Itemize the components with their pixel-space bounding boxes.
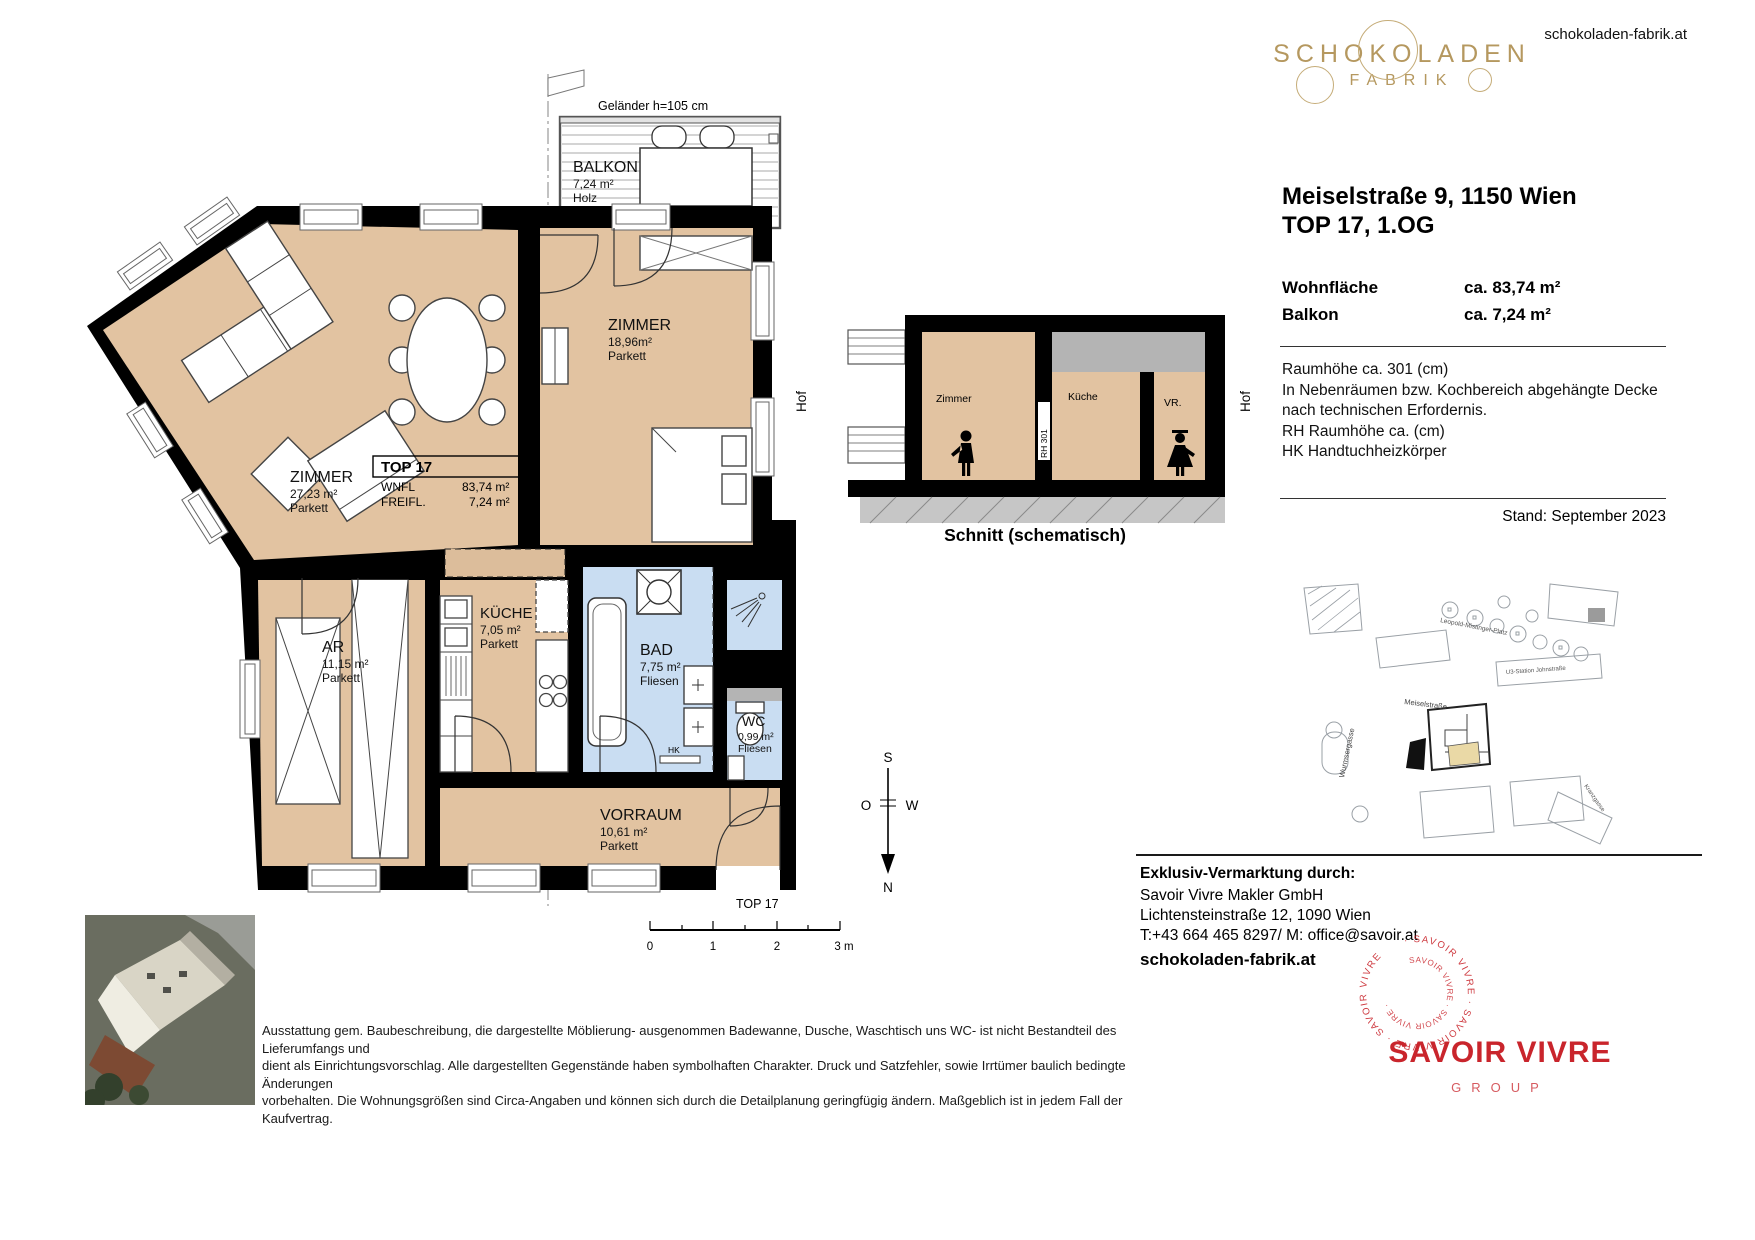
date-stamp: Stand: September 2023 (1280, 508, 1666, 526)
svg-text:0: 0 (647, 941, 653, 953)
label-kueche: KÜCHE (480, 604, 533, 622)
svg-text:Holz: Holz (573, 191, 597, 205)
street-label: Meiselstraße (1404, 697, 1448, 711)
section-kueche (1052, 372, 1140, 480)
entrance-label: TOP 17 (736, 897, 779, 911)
marketing-heading: Exklusiv-Vermarktung durch: (1140, 864, 1418, 884)
company-address: Lichtensteinstraße 12, 1090 Wien (1140, 906, 1418, 926)
hof-right-label: Hof (1238, 391, 1253, 412)
map-unit-highlight (1448, 742, 1480, 766)
marketing-block: Exklusiv-Vermarktung durch: Savoir Vivre… (1140, 864, 1418, 946)
unit-line: TOP 17, 1.OG (1282, 211, 1577, 240)
svg-text:27,23 m²: 27,23 m² (290, 487, 337, 501)
area-summary: Wohnflächeca. 83,74 m² Balkonca. 7,24 m² (1282, 278, 1560, 332)
svg-text:Parkett: Parkett (290, 501, 329, 515)
website-url-footer[interactable]: schokoladen-fabrik.at (1140, 950, 1316, 970)
label-bad: BAD (640, 642, 673, 659)
balcony-railing (560, 117, 780, 123)
shower (637, 570, 681, 614)
label-ar: AR (322, 639, 344, 656)
svg-text:O: O (861, 798, 872, 813)
bed (652, 428, 752, 542)
divider (1136, 854, 1702, 856)
entrance-opening (716, 866, 780, 890)
divider (1280, 346, 1666, 347)
section-label-kueche: Küche (1068, 391, 1098, 403)
svg-text:Parkett: Parkett (322, 671, 361, 685)
aerial-photo (85, 915, 255, 1105)
website-url-top[interactable]: schokoladen-fabrik.at (1544, 26, 1687, 43)
label-wc: WC (742, 713, 765, 729)
label-zimmer-18: ZIMMER (608, 317, 671, 334)
svg-text:2: 2 (774, 941, 780, 953)
notes-block: Raumhöhe ca. 301 (cm) In Nebenräumen bzw… (1282, 360, 1658, 463)
svg-text:WNFL: WNFL (381, 480, 415, 494)
brand-subtitle: GROUP (1352, 1080, 1648, 1095)
logo-circle-icon (1358, 20, 1418, 80)
address-line: Meiselstraße 9, 1150 Wien (1282, 182, 1577, 211)
section-caption: Schnitt (schematisch) (944, 525, 1126, 545)
site-map: Leopold-Mistinger-Platz Meiselstraße Wur… (1300, 582, 1620, 847)
svg-text:Parkett: Parkett (480, 637, 519, 651)
svg-text:N: N (883, 880, 893, 895)
svg-text:S: S (883, 750, 892, 765)
svg-text:1: 1 (710, 941, 716, 953)
wc-decke-band (727, 688, 782, 701)
area-row: Balkonca. 7,24 m² (1282, 305, 1560, 325)
company-name: Savoir Vivre Makler GmbH (1140, 886, 1418, 906)
street-label: Leopold-Mistinger-Platz (1440, 617, 1508, 637)
logo-circle-icon (1468, 68, 1492, 92)
section-flag-icon (548, 70, 584, 96)
section-label-zimmer: Zimmer (936, 393, 972, 405)
svg-text:Fliesen: Fliesen (640, 674, 679, 688)
towel-radiator (660, 756, 700, 763)
bathtub (588, 598, 626, 746)
rh-label: RH 301 (1039, 429, 1049, 458)
hk-label: HK (668, 745, 680, 755)
label-zimmer-27: ZIMMER (290, 469, 353, 486)
svg-text:Parkett: Parkett (600, 839, 639, 853)
stamp-inner-text: SAVOIR VIVRE · SAVOIR VIVRE · (1372, 947, 1463, 1038)
svg-text:7,24 m²: 7,24 m² (469, 495, 510, 509)
compass: S O W N (861, 750, 919, 895)
disclaimer: Ausstattung gem. Baubeschreibung, die da… (262, 1022, 1134, 1127)
svg-text:FREIFL.: FREIFL. (381, 495, 426, 509)
svg-text:Parkett: Parkett (608, 349, 647, 363)
area-row: Wohnflächeca. 83,74 m² (1282, 278, 1560, 298)
hof-left-label: Hof (794, 391, 809, 412)
suspended-ceiling-band (1052, 332, 1205, 372)
section-zimmer (922, 332, 1035, 480)
section-label-vr: VR. (1164, 397, 1182, 409)
dining-table (389, 295, 505, 425)
wc-basin (728, 756, 744, 780)
kueche-decke-dashed (445, 549, 565, 577)
svg-text:Fliesen: Fliesen (738, 743, 772, 755)
svg-text:10,61 m²: 10,61 m² (600, 825, 647, 839)
street-label: U3-Station Johnstraße (1506, 666, 1567, 676)
balcony-chair (700, 126, 734, 148)
svg-text:83,74 m²: 83,74 m² (462, 480, 509, 494)
divider (1280, 498, 1666, 499)
scale-bar: 0 1 2 3 m (647, 921, 854, 953)
floor-plan: Geländer h=105 cm (0, 0, 1270, 960)
railing-note: Geländer h=105 cm (598, 99, 708, 113)
svg-text:7,75 m²: 7,75 m² (640, 660, 681, 674)
logo: SCHOKOLADEN FABRIK (1262, 40, 1542, 90)
svg-text:SAVOIR VIVRE · SAVOIR VIVRE ·: SAVOIR VIVRE · SAVOIR VIVRE · (1372, 947, 1463, 1038)
wardrobe (640, 236, 752, 270)
map-subject-building (1406, 704, 1490, 770)
svg-text:3 m: 3 m (834, 941, 853, 953)
svg-text:0,99 m²: 0,99 m² (738, 731, 774, 743)
section-drawing: RH 301 Zimmer Küche VR. Schnitt (schemat… (848, 315, 1225, 545)
map-marker (1406, 738, 1426, 770)
label-vorraum: VORRAUM (600, 807, 682, 824)
svg-text:TOP 17: TOP 17 (381, 459, 432, 476)
brand-name: SAVOIR VIVRE (1352, 1036, 1648, 1070)
logo-circle-icon (1296, 66, 1334, 104)
svg-text:7,24 m²: 7,24 m² (573, 177, 614, 191)
compass-arrow (881, 854, 895, 874)
label-balkon: BALKON (573, 159, 638, 176)
dresser (542, 328, 568, 384)
svg-text:W: W (906, 798, 919, 813)
section-balconies (848, 330, 905, 463)
balcony-chair (652, 126, 686, 148)
svg-text:11,15 m²: 11,15 m² (322, 657, 368, 671)
svg-text:7,05 m²: 7,05 m² (480, 623, 521, 637)
section-base-hatch (860, 497, 1225, 523)
balcony-table (640, 148, 752, 206)
flyer-page: Geländer h=105 cm (0, 0, 1755, 1240)
svg-text:18,96m²: 18,96m² (608, 335, 652, 349)
property-title: Meiselstraße 9, 1150 Wien TOP 17, 1.OG (1282, 182, 1577, 240)
